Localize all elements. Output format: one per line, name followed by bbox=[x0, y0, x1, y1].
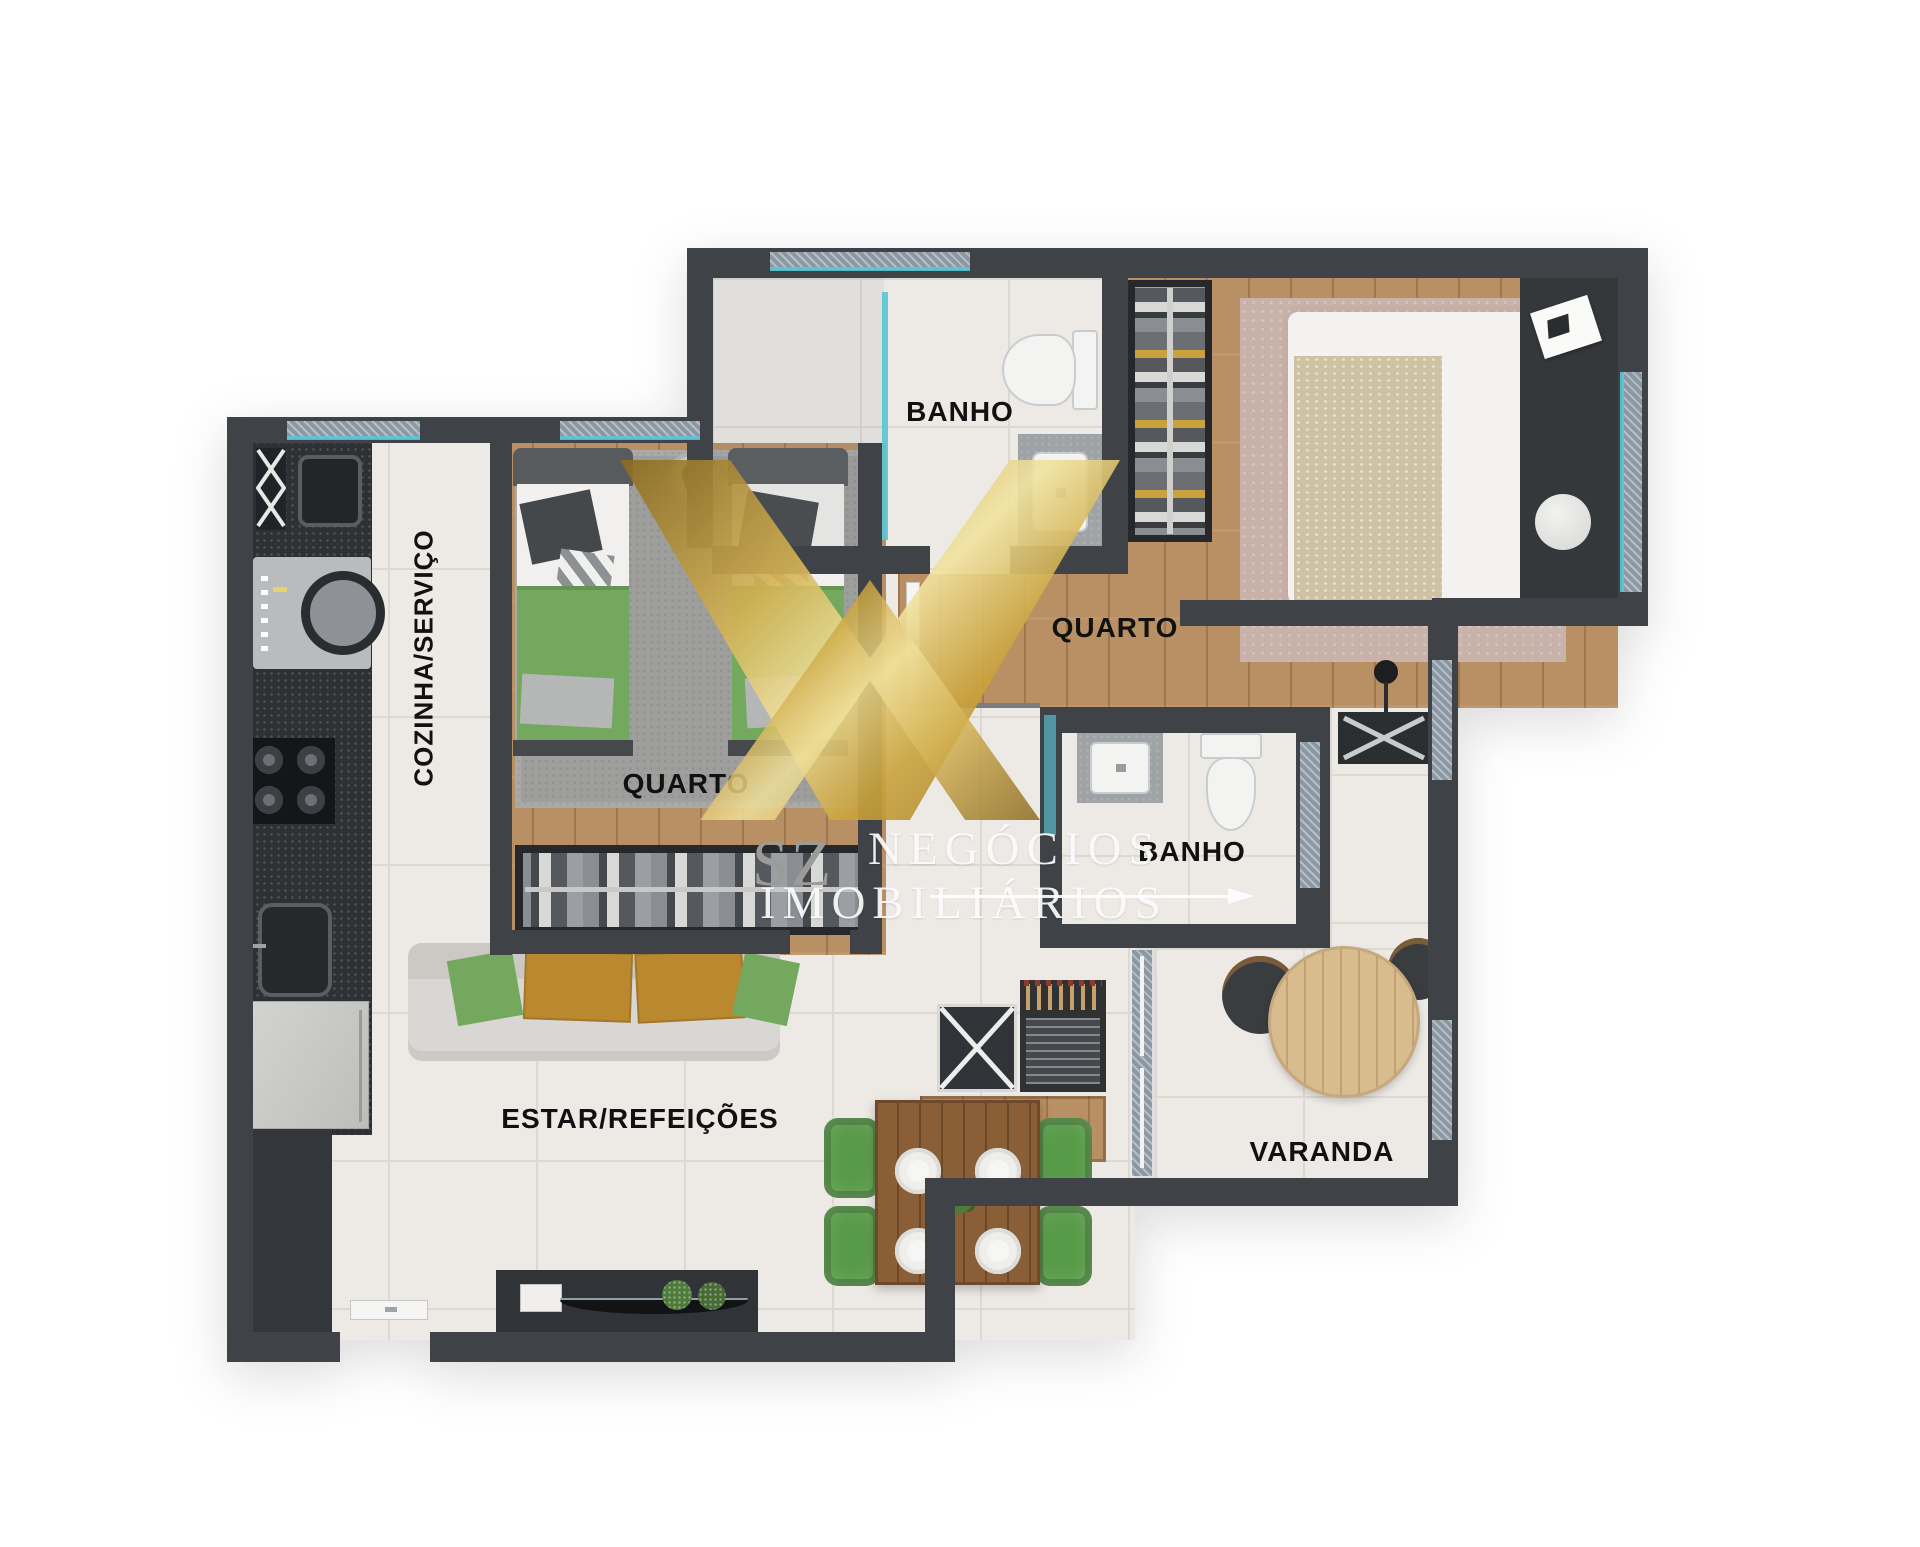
sofa-pillow-green-1 bbox=[447, 950, 523, 1026]
wall-bedroom1-bottom-b bbox=[850, 930, 882, 954]
hall-door-leaf bbox=[906, 582, 920, 708]
window-banho1-glass bbox=[770, 267, 970, 271]
plant-small-1 bbox=[662, 1280, 692, 1310]
room-label-banho-social: BANHO bbox=[1138, 836, 1246, 868]
balcony-round-table bbox=[1268, 946, 1420, 1098]
room-label-estar-refeicoes: ESTAR/REFEIÇÕES bbox=[501, 1103, 778, 1135]
glass-banho2-line bbox=[1044, 715, 1056, 835]
toilet-suite bbox=[1002, 330, 1098, 410]
wall-bedroom1-left bbox=[490, 443, 512, 955]
room-label-varanda: VARANDA bbox=[1250, 1136, 1395, 1168]
sofa-pillow-mustard-1 bbox=[523, 949, 633, 1023]
throw-gray bbox=[520, 674, 614, 729]
wall-left bbox=[227, 417, 253, 1362]
sink-social bbox=[1090, 742, 1150, 794]
dining-chair-2 bbox=[824, 1206, 880, 1286]
kitchen-sink bbox=[258, 903, 332, 997]
round-stool bbox=[1535, 494, 1591, 550]
wall-banho1-bottom-a bbox=[712, 546, 930, 574]
room-label-banho-suite: BANHO bbox=[906, 396, 1014, 428]
technical-shaft bbox=[937, 1004, 1017, 1092]
wall-bottom-b bbox=[430, 1332, 955, 1362]
toilet-social bbox=[1200, 733, 1262, 833]
wall-bottom-a bbox=[227, 1332, 340, 1362]
floor-lamp bbox=[1374, 660, 1398, 712]
window-balcony-1 bbox=[1432, 660, 1452, 780]
drying-rack-icon bbox=[256, 448, 286, 530]
laundry-sink bbox=[298, 455, 362, 527]
console-x-table bbox=[1338, 712, 1430, 764]
washing-machine bbox=[253, 557, 371, 669]
floor-plan: BANHO QUARTO QUARTO COZINHA/SERVIÇO BANH… bbox=[0, 0, 1920, 1547]
room-label-quarto-solteiro: QUARTO bbox=[623, 768, 750, 800]
hall-threshold bbox=[898, 703, 1040, 708]
sofa-pillow-mustard-2 bbox=[634, 948, 746, 1024]
glass-banho2 bbox=[1300, 742, 1320, 888]
shower-glass bbox=[882, 292, 888, 540]
dining-chair-4 bbox=[1036, 1206, 1092, 1286]
window-bedroom1-glass bbox=[560, 436, 700, 440]
wardrobe-couple-bedroom bbox=[1128, 280, 1212, 542]
wall-bedroom1-right-b bbox=[858, 707, 882, 932]
wall-bedroom1-right-a bbox=[858, 443, 882, 707]
glass-door-balcony bbox=[1132, 950, 1152, 1176]
sink-suite bbox=[1032, 452, 1088, 532]
barbecue-grill bbox=[1020, 980, 1106, 1092]
wall-banho1-bottom-b bbox=[1010, 546, 1102, 574]
wall-banho1-right bbox=[1102, 278, 1128, 574]
entrance-door-leaf bbox=[350, 1300, 428, 1320]
window-bedroom2-east bbox=[1622, 372, 1642, 592]
tv-console bbox=[496, 1270, 758, 1332]
wall-topblock-left bbox=[687, 248, 713, 548]
wall-banho2-north bbox=[1040, 707, 1330, 733]
window-bedroom2-glass bbox=[1620, 372, 1624, 592]
fridge bbox=[247, 1001, 369, 1129]
single-bed-1 bbox=[513, 448, 633, 758]
wall-balcony-bottom bbox=[925, 1178, 1458, 1206]
wall-bedroom1-bottom-a bbox=[490, 930, 790, 954]
room-label-cozinha-servico: COZINHA/SERVIÇO bbox=[409, 529, 440, 786]
wardrobe-single-bedroom bbox=[515, 845, 875, 935]
sofa bbox=[408, 943, 780, 1061]
wall-bedroom2-south bbox=[1180, 600, 1432, 626]
tv-remote bbox=[520, 1284, 562, 1312]
wall-banho2-south bbox=[1040, 924, 1330, 948]
window-balcony-2 bbox=[1432, 1020, 1452, 1140]
cooktop bbox=[247, 738, 335, 824]
dining-chair-1 bbox=[824, 1118, 880, 1198]
plant-small-2 bbox=[698, 1282, 726, 1310]
kitchen-lower-cabinet bbox=[240, 1127, 332, 1335]
room-label-quarto-casal: QUARTO bbox=[1052, 612, 1179, 644]
window-kitchen-glass bbox=[287, 436, 420, 440]
wall-step-horizontal bbox=[1432, 598, 1648, 626]
